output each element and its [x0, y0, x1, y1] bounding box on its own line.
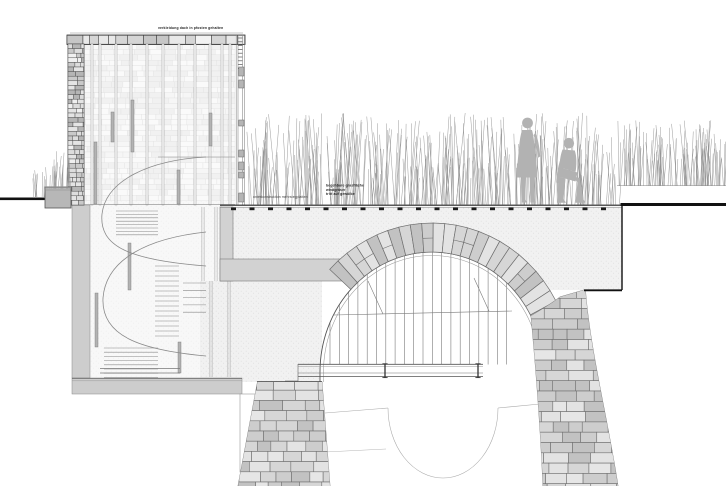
section-drawing: verkleidung dach in pfosten gehalten beg…: [0, 0, 726, 486]
roof-annotation: verkleidung dach in pfosten gehalten: [158, 26, 223, 30]
deck-annotation-line3: tritt auf gewölbe: [326, 192, 355, 196]
architectural-section-canvas: verkleidung dach in pfosten gehalten beg…: [0, 0, 726, 486]
underside-annotation: unterkonstruktion mehrstegplatten: [253, 195, 308, 199]
